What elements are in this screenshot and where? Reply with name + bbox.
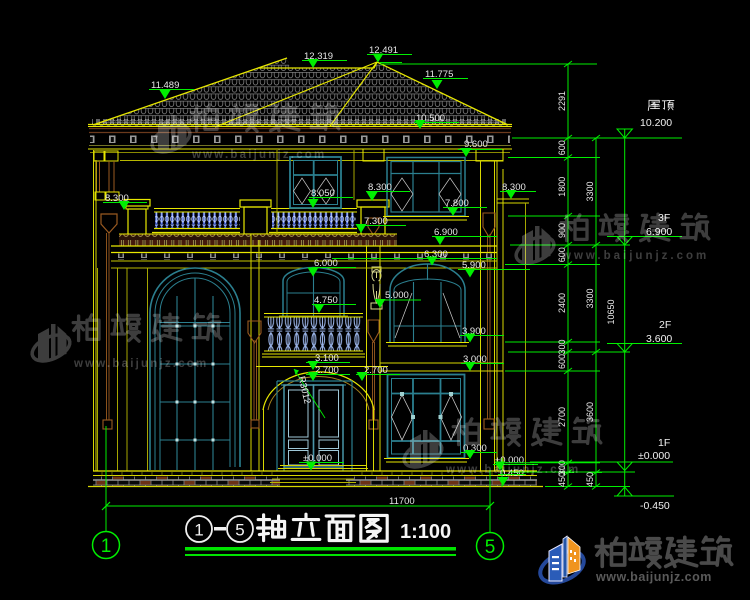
svg-text:2700: 2700 [557, 407, 567, 427]
svg-text:11700: 11700 [389, 496, 415, 507]
svg-text:3300: 3300 [585, 288, 595, 308]
svg-text:600: 600 [557, 140, 567, 155]
svg-text:300: 300 [557, 339, 567, 354]
svg-text:www.baijunjz.com: www.baijunjz.com [445, 464, 580, 476]
svg-text:2400: 2400 [557, 293, 567, 313]
svg-text:5: 5 [235, 521, 244, 540]
svg-text:2291: 2291 [557, 91, 567, 111]
svg-text:1: 1 [101, 536, 112, 557]
svg-text:1F: 1F [658, 437, 670, 449]
svg-text:5.000: 5.000 [385, 290, 409, 301]
svg-text:www.baijunjz.com: www.baijunjz.com [191, 149, 326, 161]
svg-text:10650: 10650 [606, 299, 616, 324]
svg-text:3300: 3300 [585, 181, 595, 201]
svg-text:2F: 2F [659, 319, 671, 331]
svg-text:1800: 1800 [557, 177, 567, 197]
svg-text:www.baijunjz.com: www.baijunjz.com [561, 250, 709, 262]
svg-text:1:100: 1:100 [400, 521, 451, 543]
svg-text:450: 450 [585, 472, 595, 487]
svg-text:10.200: 10.200 [640, 117, 672, 129]
svg-text:1: 1 [194, 521, 203, 540]
svg-text:±0.000: ±0.000 [638, 450, 670, 462]
svg-text:600: 600 [557, 354, 567, 369]
svg-text:www.baijunjz.com: www.baijunjz.com [73, 358, 208, 370]
svg-text:-0.450: -0.450 [640, 500, 670, 512]
svg-text:5: 5 [485, 537, 496, 558]
svg-text:www.baijunjz.com: www.baijunjz.com [595, 570, 712, 584]
